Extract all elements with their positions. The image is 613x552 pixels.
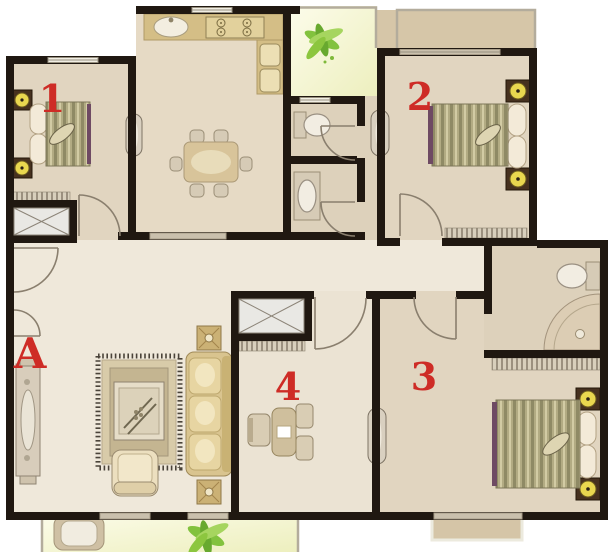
headboard	[578, 412, 596, 445]
closet-x	[239, 299, 304, 333]
floor-plan: 1 2 3 4 A	[0, 0, 613, 552]
room-label-4: 4	[275, 364, 301, 409]
bay-window-2-wall	[397, 10, 535, 54]
shower-drain	[576, 330, 585, 339]
window	[400, 50, 500, 55]
room-label-2: 2	[407, 74, 433, 119]
armchair	[112, 450, 158, 496]
desk-chair	[296, 436, 313, 460]
wc-2	[294, 172, 320, 220]
balcony-door-threshold	[100, 513, 150, 519]
room-label-3: 3	[411, 354, 437, 399]
dining-chair	[190, 184, 204, 197]
wardrobe	[10, 192, 70, 201]
room-label-A: A	[13, 329, 48, 378]
stove	[206, 17, 264, 38]
bay-window-threshold	[434, 513, 522, 519]
toilet-tank	[586, 262, 600, 290]
laundry-sink	[54, 516, 104, 550]
side-table	[197, 480, 221, 504]
dining-chair	[190, 130, 204, 143]
balcony-top-floor	[291, 6, 377, 96]
dining-chair	[170, 157, 182, 171]
side-table	[197, 326, 221, 350]
appliance	[260, 69, 280, 92]
opening-threshold	[150, 233, 226, 239]
appliance	[260, 44, 280, 66]
bed-3	[492, 388, 600, 500]
wc-1	[294, 112, 330, 138]
coffee-table	[114, 382, 164, 440]
wardrobe	[445, 228, 527, 238]
headboard	[508, 104, 526, 136]
dining-chair	[214, 130, 228, 143]
window	[192, 8, 232, 13]
hallway-floor	[231, 240, 492, 299]
closet-x	[14, 208, 69, 235]
balcony-door-threshold	[188, 513, 228, 519]
window	[48, 58, 98, 63]
wardrobe	[492, 358, 600, 370]
dining-chair	[240, 157, 252, 171]
wash-basin	[298, 180, 316, 212]
window	[300, 98, 330, 103]
blanket	[496, 400, 580, 488]
dining-chair	[214, 184, 228, 197]
sofa	[186, 352, 232, 476]
toilet	[557, 264, 587, 288]
floor-plan-drawing: 1 2 3 4 A	[0, 0, 613, 552]
wardrobe	[239, 341, 305, 351]
room-label-1: 1	[39, 76, 65, 121]
toilet	[304, 114, 330, 136]
